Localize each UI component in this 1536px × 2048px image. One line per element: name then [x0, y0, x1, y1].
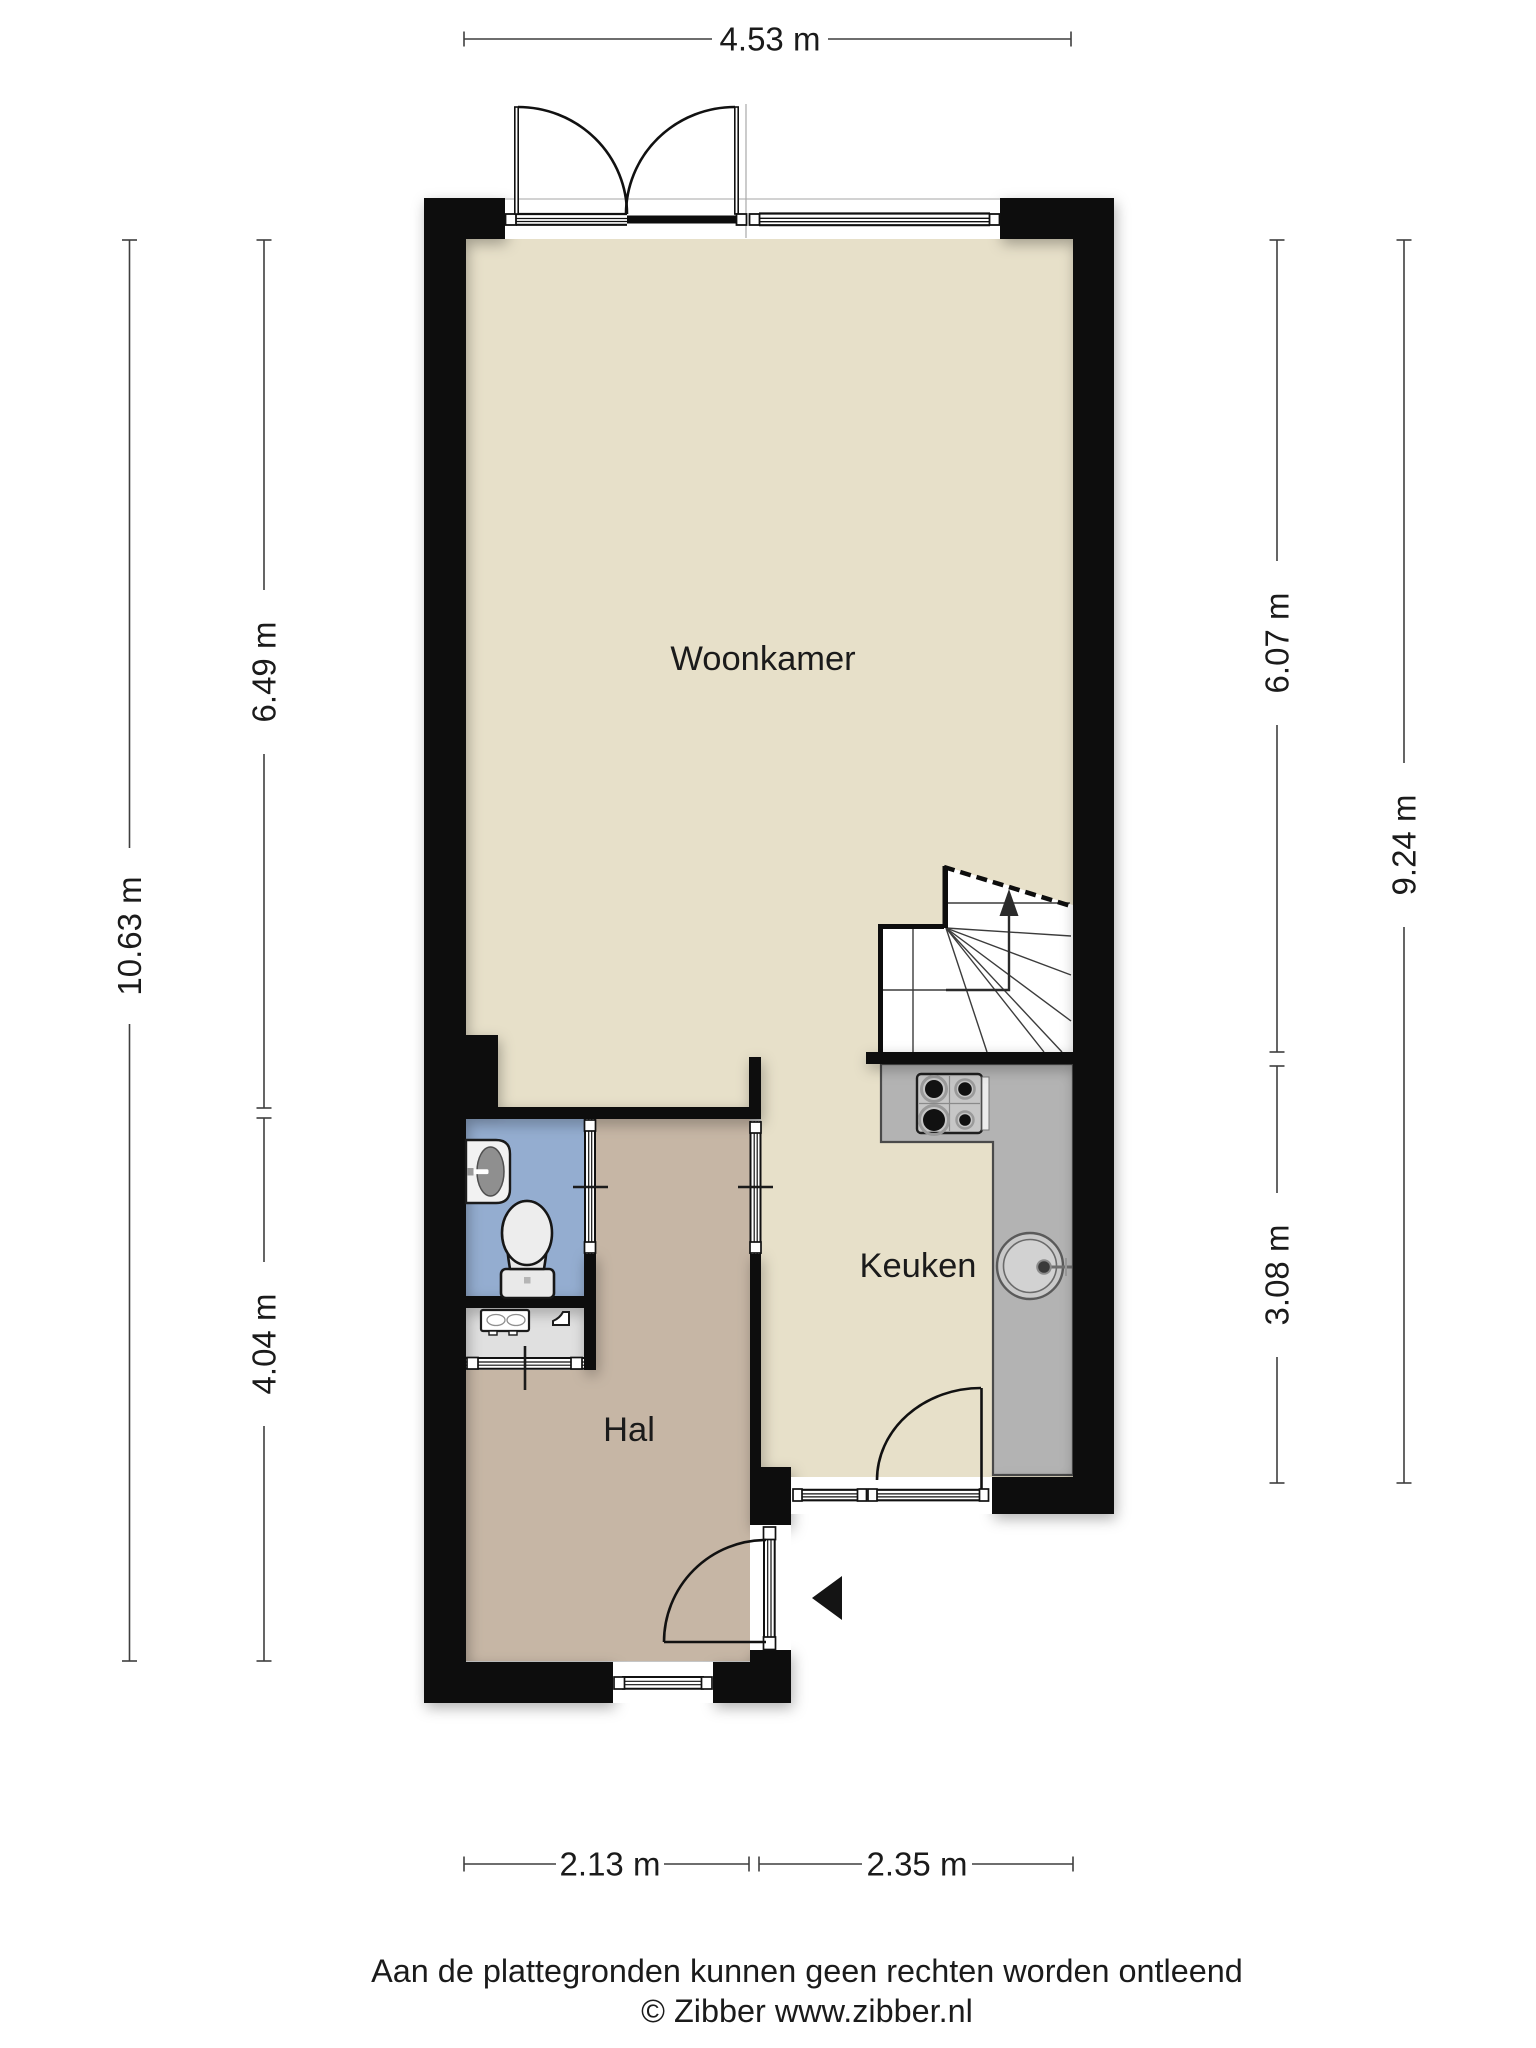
svg-text:6.49 m: 6.49 m: [246, 622, 283, 723]
svg-text:4.04 m: 4.04 m: [246, 1294, 283, 1395]
svg-text:2.13 m: 2.13 m: [560, 1846, 661, 1883]
svg-text:2.35 m: 2.35 m: [867, 1846, 968, 1883]
svg-text:10.63 m: 10.63 m: [111, 876, 148, 995]
svg-text:Hal: Hal: [603, 1411, 655, 1449]
svg-text:Woonkamer: Woonkamer: [670, 640, 855, 678]
svg-text:3.08 m: 3.08 m: [1259, 1225, 1296, 1326]
svg-text:Aan de plattegronden kunnen ge: Aan de plattegronden kunnen geen rechten…: [371, 1953, 1243, 1989]
svg-text:4.53 m: 4.53 m: [720, 21, 821, 58]
svg-text:9.24 m: 9.24 m: [1386, 795, 1423, 896]
svg-text:Keuken: Keuken: [859, 1247, 976, 1285]
svg-text:© Zibber www.zibber.nl: © Zibber www.zibber.nl: [641, 1993, 973, 2029]
svg-text:6.07 m: 6.07 m: [1259, 593, 1296, 694]
